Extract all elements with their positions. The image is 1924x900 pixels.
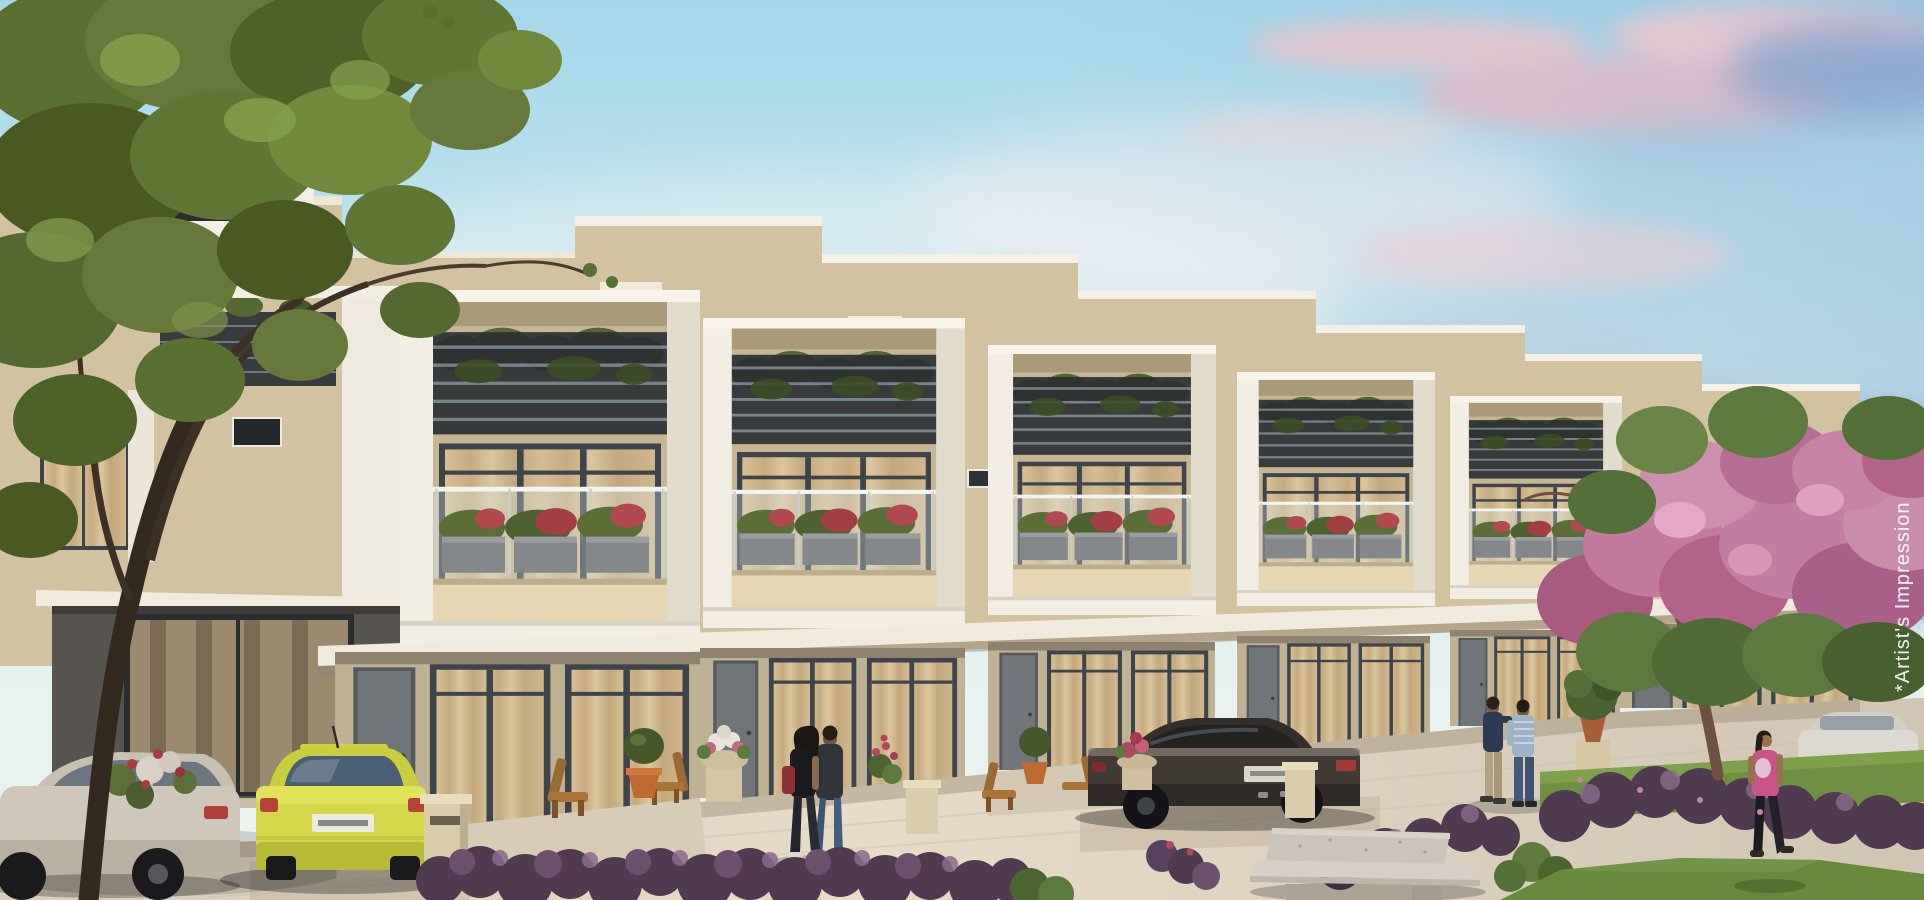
villa-1-slit-window	[233, 418, 281, 446]
villa-3	[703, 318, 965, 628]
taillight	[1336, 760, 1356, 771]
villa-5	[1237, 372, 1435, 606]
scene: *Artist's Impression	[0, 0, 1924, 900]
rendering-canvas: *Artist's Impression	[0, 0, 1924, 900]
villa-2	[400, 290, 700, 645]
villa-4	[988, 345, 1216, 615]
topiary	[624, 728, 664, 764]
red-bag	[782, 766, 795, 794]
gate-pillar-3	[1282, 762, 1318, 818]
watermark-text: *Artist's Impression	[1892, 501, 1914, 692]
shirt-print	[1755, 758, 1771, 778]
gate-pillar-2	[903, 780, 941, 834]
taillight	[260, 798, 278, 812]
taillight	[204, 806, 228, 819]
